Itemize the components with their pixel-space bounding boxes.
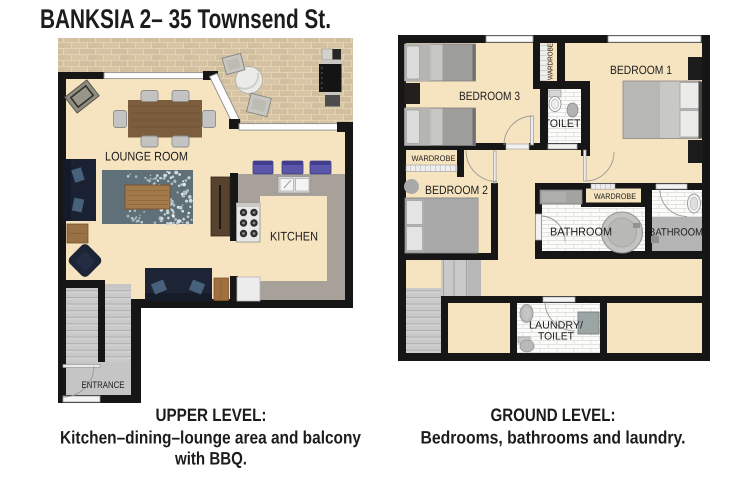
svg-text:with BBQ.: with BBQ. [174,449,247,469]
svg-text:WARDROBE: WARDROBE [594,192,636,201]
svg-text:Kitchen–dining–lounge area and: Kitchen–dining–lounge area and balcony [60,428,361,448]
svg-text:GROUND LEVEL:: GROUND LEVEL: [491,405,616,425]
svg-text:TOILET: TOILET [544,118,581,130]
svg-text:LOUNGE ROOM: LOUNGE ROOM [105,150,188,164]
svg-text:BEDROOM 2: BEDROOM 2 [425,183,488,197]
svg-text:WARDROBE: WARDROBE [412,154,456,163]
svg-text:TOILET: TOILET [538,331,575,343]
svg-text:WARDROBE: WARDROBE [548,43,555,80]
svg-text:ENTRANCE: ENTRANCE [82,380,125,391]
svg-text:UPPER LEVEL:: UPPER LEVEL: [156,405,267,425]
svg-text:BATHROOM: BATHROOM [649,227,703,239]
svg-text:BATHROOM: BATHROOM [550,227,612,239]
svg-text:BEDROOM 3: BEDROOM 3 [459,89,520,103]
svg-text:Bedrooms, bathrooms and laundr: Bedrooms, bathrooms and laundry. [421,428,686,448]
svg-text:BEDROOM 1: BEDROOM 1 [610,63,672,77]
svg-text:BANKSIA 2– 35 Townsend St.: BANKSIA 2– 35 Townsend St. [40,4,331,34]
svg-text:KITCHEN: KITCHEN [270,230,318,244]
